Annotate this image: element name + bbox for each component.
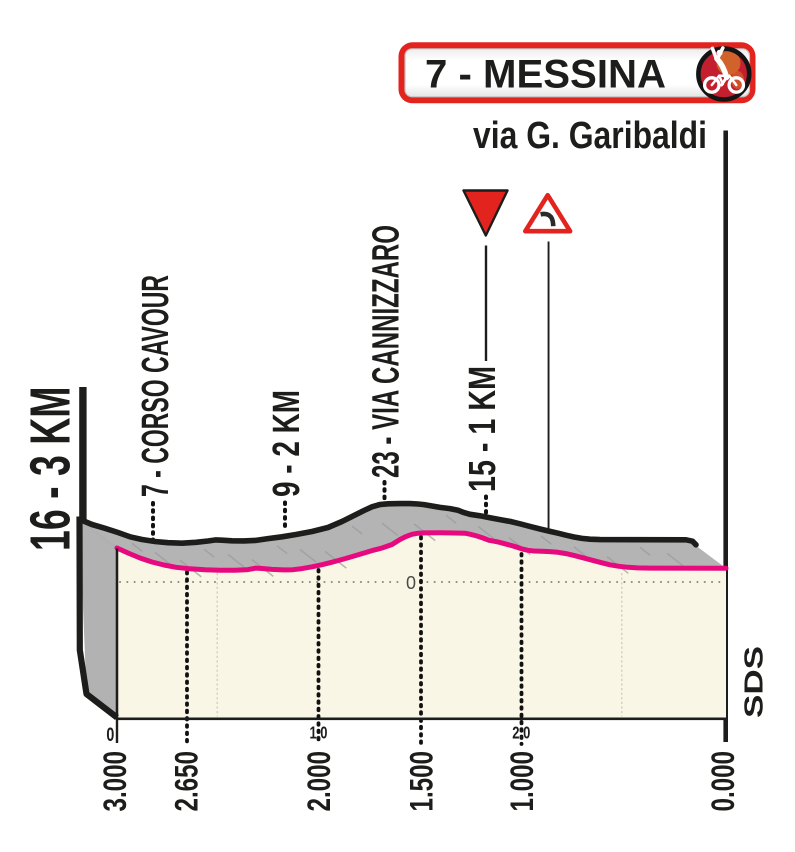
svg-text:2.000: 2.000 <box>301 751 337 812</box>
svg-text:15 - 1 KM: 15 - 1 KM <box>462 366 504 492</box>
svg-text:0: 0 <box>106 724 114 745</box>
svg-text:9 - 2 KM: 9 - 2 KM <box>266 390 308 497</box>
svg-text:0: 0 <box>406 573 416 593</box>
svg-text:via G. Garibaldi: via G. Garibaldi <box>473 115 707 157</box>
svg-text:16 - 3 KM: 16 - 3 KM <box>19 387 82 552</box>
svg-text:1.500: 1.500 <box>404 751 440 812</box>
svg-text:1.000: 1.000 <box>504 751 540 812</box>
svg-text:0.000: 0.000 <box>705 751 741 812</box>
svg-text:2.0: 2.0 <box>512 724 530 744</box>
svg-text:7 - CORSO CAVOUR: 7 - CORSO CAVOUR <box>135 275 177 497</box>
svg-text:SDS: SDS <box>739 646 769 718</box>
svg-text:1.0: 1.0 <box>309 724 327 744</box>
svg-text:3.000: 3.000 <box>97 751 133 812</box>
svg-text:23 - VIA CANNIZZARO: 23 - VIA CANNIZZARO <box>365 225 407 478</box>
svg-text:2.650: 2.650 <box>169 751 205 812</box>
svg-text:7 - MESSINA: 7 - MESSINA <box>425 53 666 97</box>
